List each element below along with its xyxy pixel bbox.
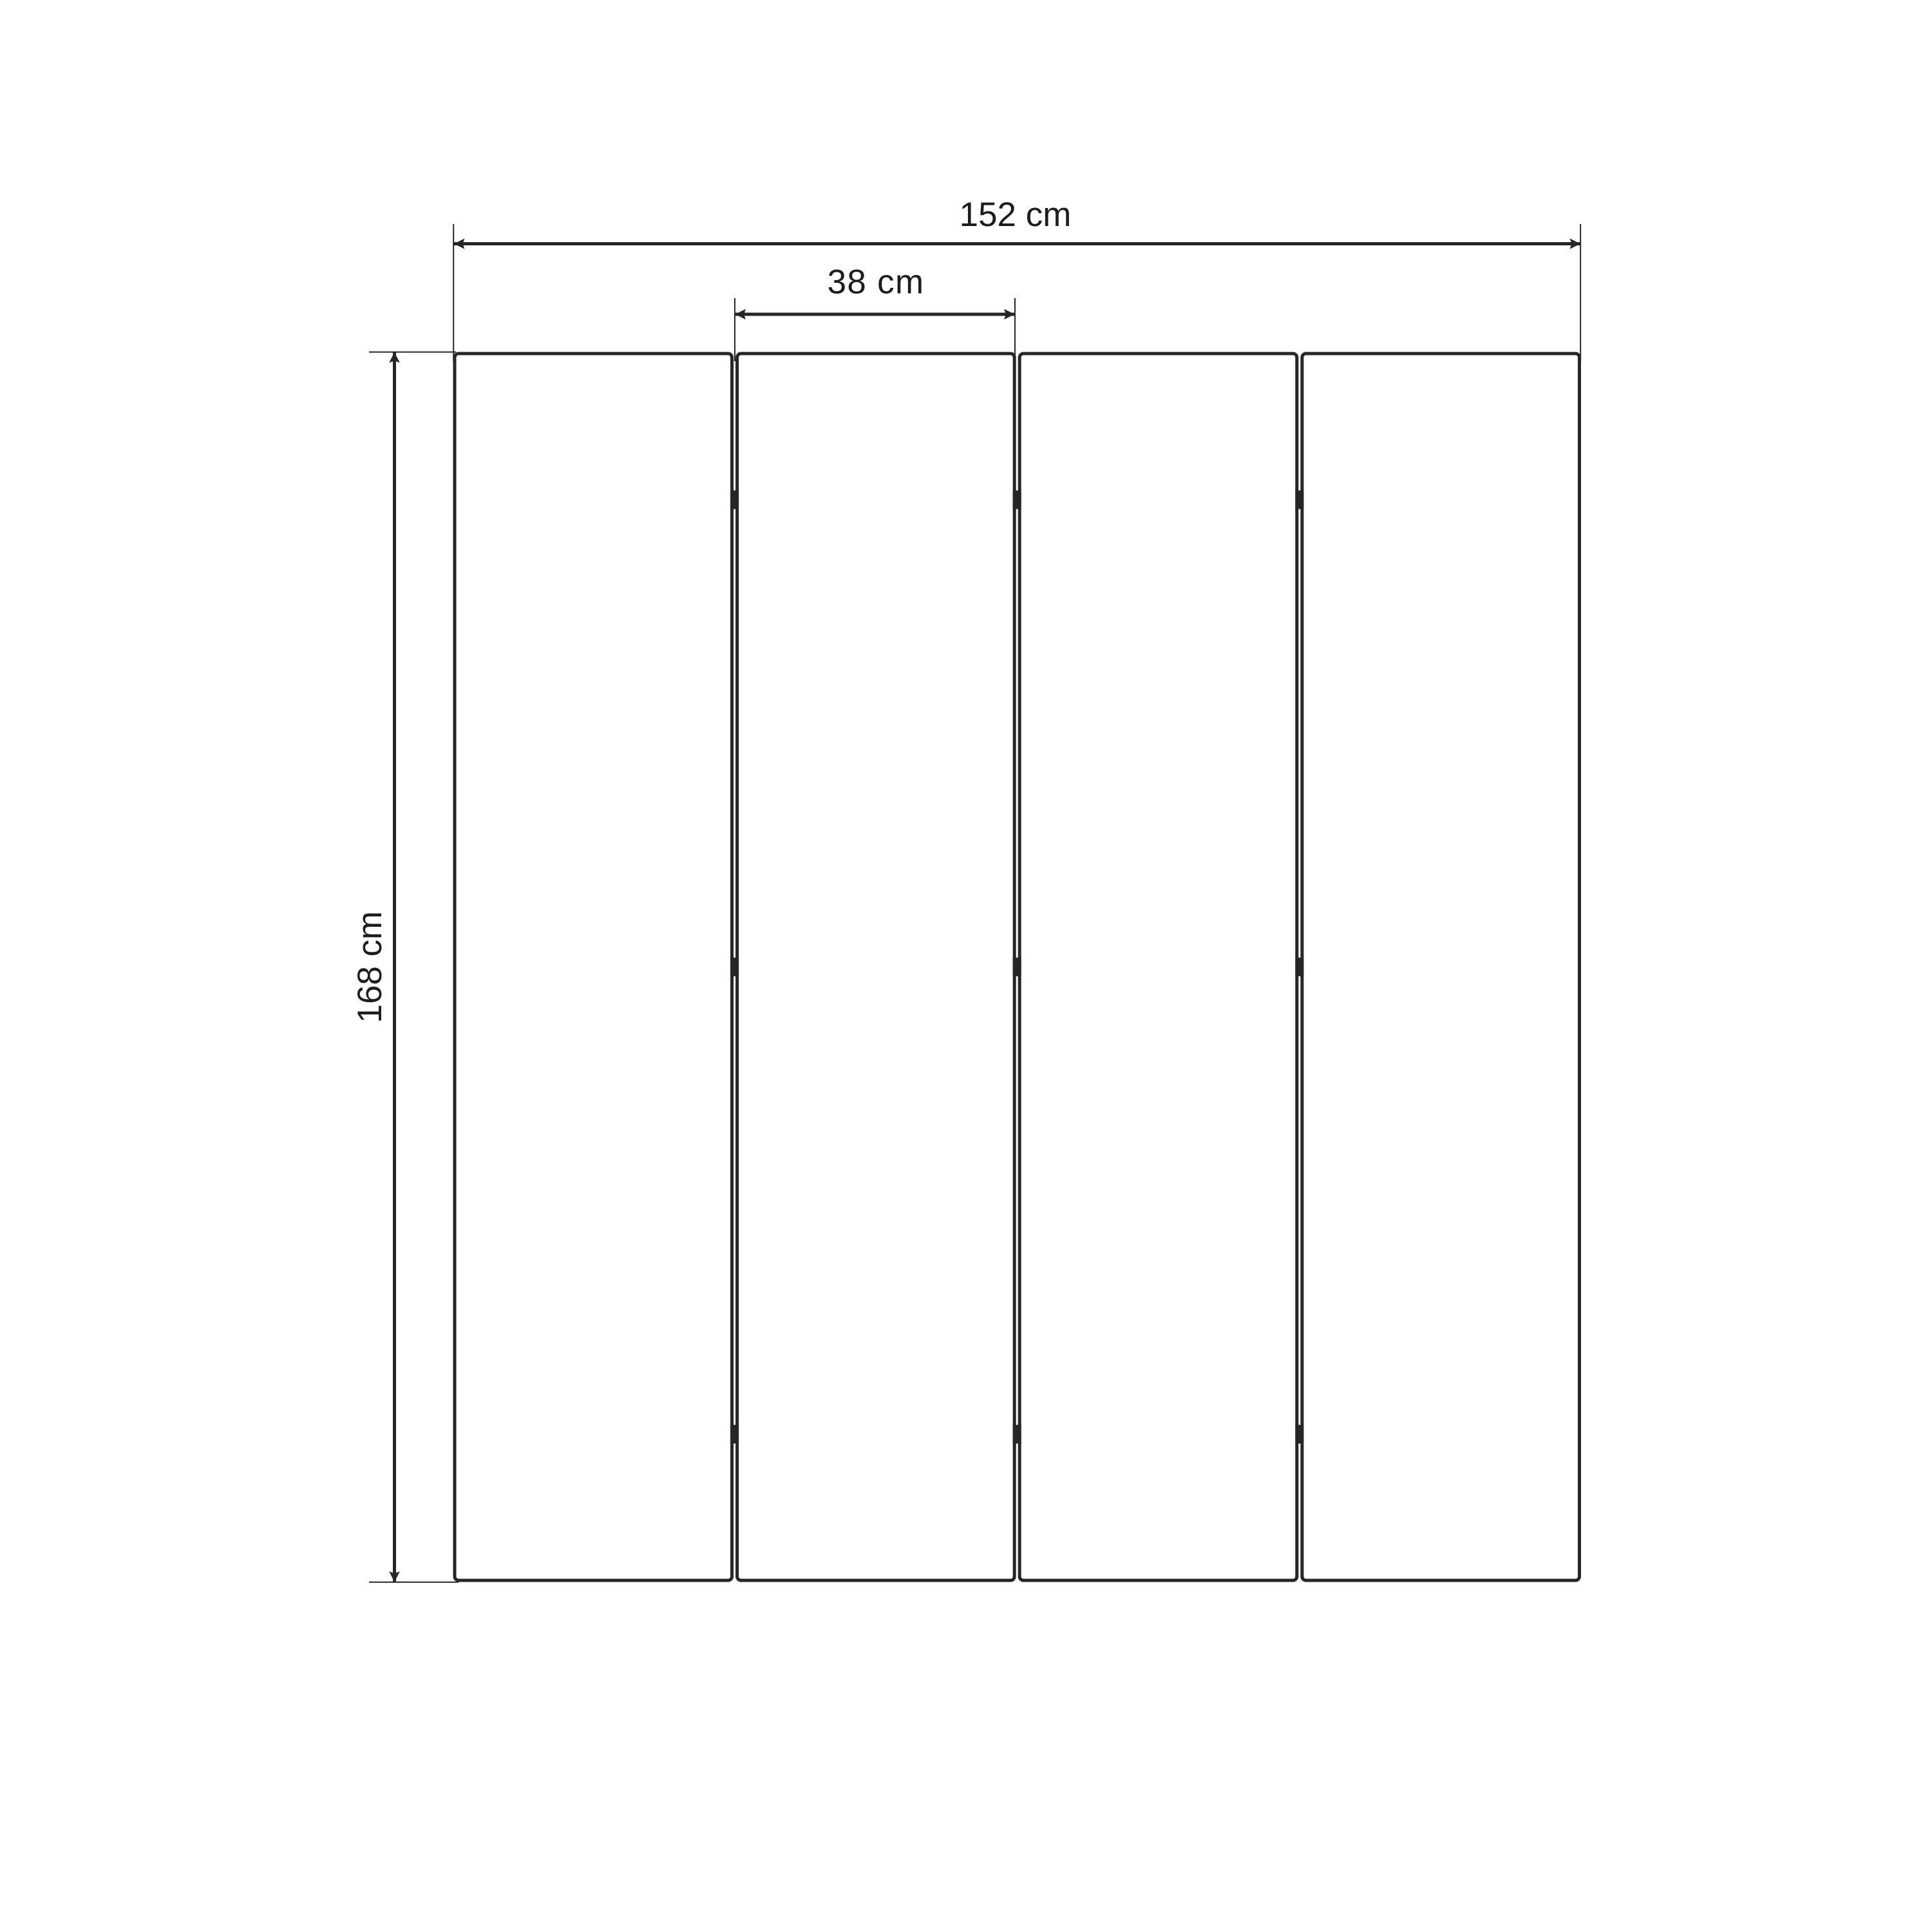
svg-text:38 cm: 38 cm — [828, 263, 925, 301]
svg-text:152 cm: 152 cm — [960, 196, 1072, 234]
svg-text:168 cm: 168 cm — [351, 911, 389, 1023]
